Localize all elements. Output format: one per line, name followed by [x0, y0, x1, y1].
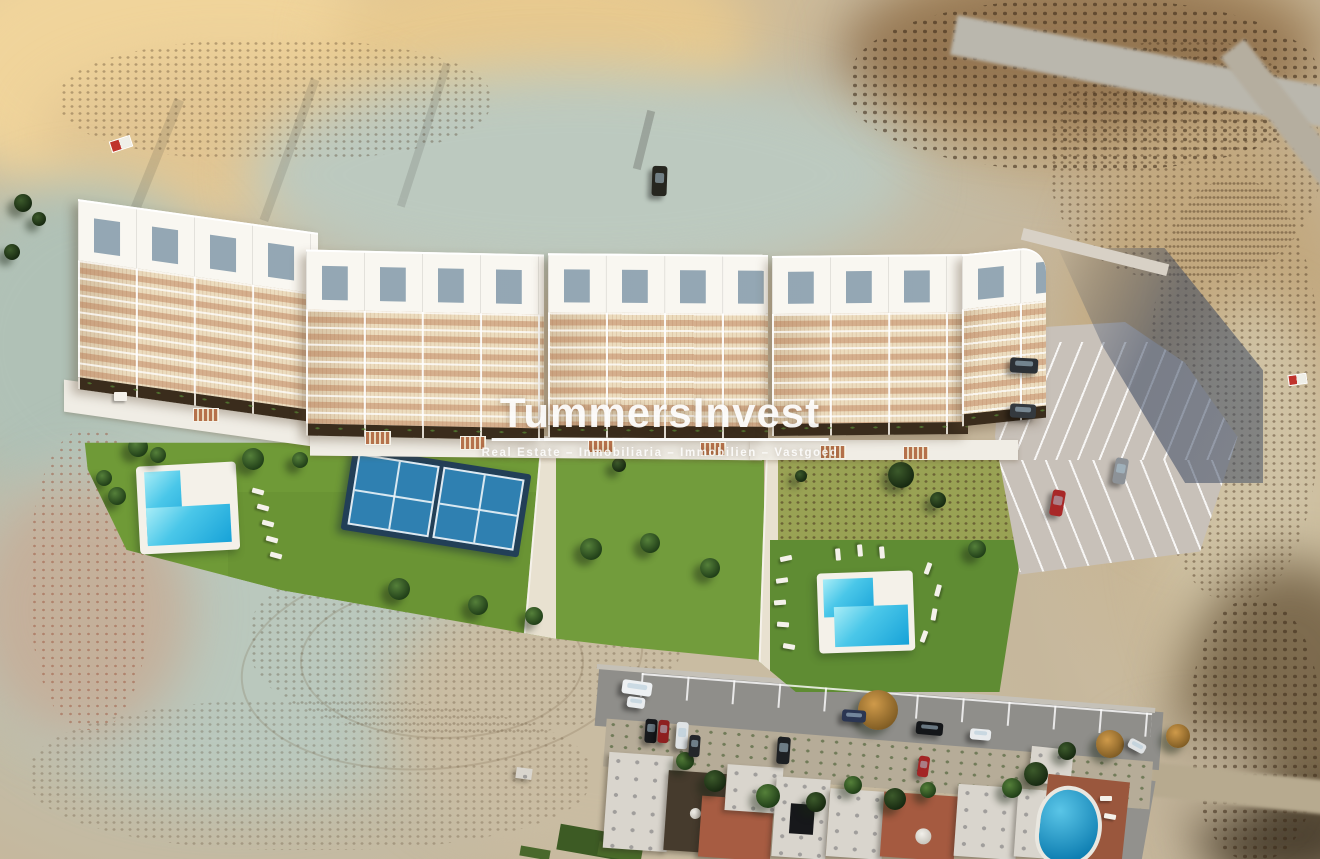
palm-tree [968, 540, 986, 558]
cast-shadow [260, 78, 320, 222]
pergola [365, 431, 391, 445]
street-tree [920, 782, 936, 798]
building-block-2 [306, 250, 544, 441]
building-planters [548, 425, 768, 439]
pergola [460, 436, 486, 450]
parked-car [917, 755, 931, 777]
cast-shadow [633, 110, 655, 170]
building-block-west-wing [78, 199, 318, 423]
parked-car [688, 735, 701, 758]
dirt-track-branch [1220, 39, 1320, 231]
dirt-track-bottomright [1149, 762, 1320, 816]
building-roofs [962, 246, 1046, 310]
promenade-table [114, 392, 127, 401]
street-tree [1058, 742, 1076, 760]
parked-car [1010, 403, 1037, 418]
sun-lounger [774, 600, 786, 606]
house-roof [603, 752, 674, 852]
building-terraces [306, 309, 544, 428]
terrain-gold-topmid [330, 0, 750, 140]
building-block-east-end [962, 246, 1046, 427]
street-tree [806, 792, 826, 812]
palm-tree [242, 448, 264, 470]
scrub-bottom-right [1190, 600, 1320, 859]
palm-tree [292, 452, 308, 468]
pergola [193, 408, 219, 422]
site-sign-left [109, 135, 134, 153]
pergola [588, 439, 614, 453]
garden-shrub [930, 492, 946, 508]
roof-dome [915, 828, 932, 845]
palm-cluster-west [32, 212, 46, 226]
palm-tree [96, 470, 112, 486]
street-tree [884, 788, 906, 810]
pool-water [146, 504, 232, 546]
aerial-site-render: TummersInvest Real Estate – Inmobiliaria… [0, 0, 1320, 859]
cypress-tree [612, 458, 626, 472]
palm-cluster-west [4, 244, 20, 260]
terrain-gold-topleft [0, 0, 410, 210]
garden-shrub [795, 470, 807, 482]
site-sign-right [1287, 373, 1307, 387]
palm-tree [150, 447, 166, 463]
grass-patch [519, 845, 550, 859]
pergola [820, 445, 846, 459]
padel-court-2 [432, 467, 524, 551]
roof-dome [690, 808, 702, 820]
building-roofs [306, 250, 544, 315]
palm-cluster-west [14, 194, 32, 212]
sun-lounger [777, 622, 789, 628]
building-terraces [548, 312, 768, 427]
pool-water [834, 605, 909, 648]
house-roof [826, 788, 887, 859]
autumn-tree [1096, 730, 1124, 758]
parked-car [842, 709, 867, 723]
parked-car [1010, 357, 1039, 373]
car-on-road [776, 737, 791, 765]
street-tree [844, 776, 862, 794]
terrain-pale-flat [250, 70, 910, 280]
palm-tree [700, 558, 720, 578]
building-roofs [548, 253, 768, 314]
cast-shadow [126, 98, 184, 222]
parked-car [657, 720, 670, 744]
building-block-4 [772, 254, 968, 436]
swimming-pool-east [817, 570, 916, 653]
shed-roof [515, 767, 532, 780]
padel-court-1 [347, 453, 439, 537]
sun-lounger [1100, 796, 1112, 801]
palm-tree [108, 487, 126, 505]
sun-lounger [835, 548, 841, 560]
parked-car [675, 722, 689, 750]
street-tree [1002, 778, 1022, 798]
street-tree [756, 784, 780, 808]
palm-tree [388, 578, 410, 600]
street-tree [1024, 762, 1048, 786]
palm-tree [468, 595, 488, 615]
sun-lounger [879, 546, 885, 558]
sun-lounger [857, 544, 863, 556]
parked-car-dirt [651, 166, 667, 197]
garden-tree [888, 462, 914, 488]
swimming-pool-west [136, 461, 240, 554]
street-tree [704, 770, 726, 792]
house-roof [771, 776, 830, 859]
promenade-right [750, 440, 1018, 460]
palm-tree [640, 533, 660, 553]
cast-shadow [397, 62, 451, 207]
parked-car [626, 696, 645, 709]
palm-tree [580, 538, 602, 560]
autumn-tree [1166, 724, 1190, 748]
pergola [700, 442, 726, 456]
terrain-brown-right-low [1180, 560, 1320, 859]
parked-car [915, 721, 943, 736]
terrain-warm-band [40, 60, 420, 210]
pergola [903, 446, 929, 460]
parked-car [644, 719, 658, 744]
building-terraces [772, 312, 968, 424]
building-planters [772, 422, 968, 436]
palm-tree [525, 607, 543, 625]
building-block-3 [548, 253, 768, 439]
parked-car [970, 728, 992, 741]
palm-tree [128, 437, 148, 457]
building-roofs [772, 254, 968, 314]
